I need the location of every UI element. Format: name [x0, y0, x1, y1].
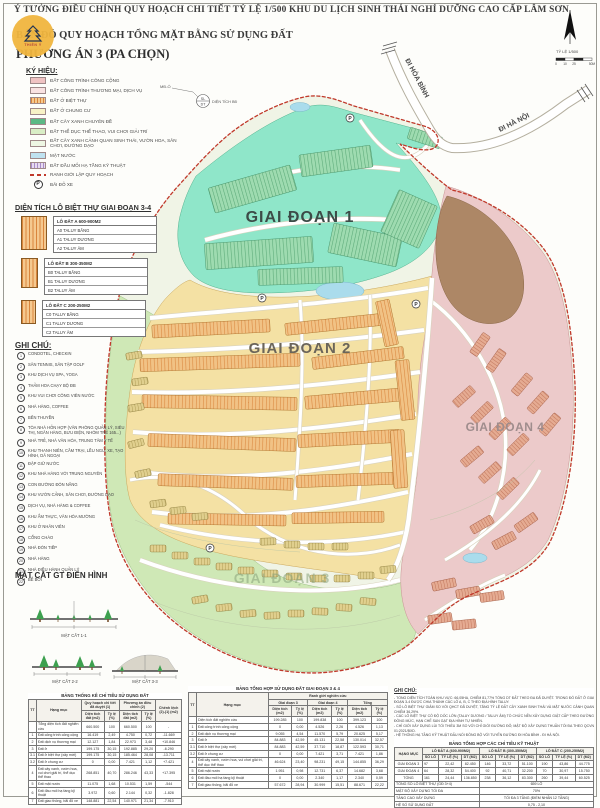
table-cell: 45.131 — [308, 737, 332, 744]
table-cell: Đất mặt nước — [197, 768, 269, 775]
table-header-cell: Tỷ lệ (%) — [142, 710, 156, 721]
table-header-cell: DT (M2) — [461, 754, 479, 761]
table-header-cell: Diện tích đất (m2) — [81, 710, 104, 721]
table-cell: 268.851 — [81, 766, 104, 781]
legend-label: ĐẤT Ở BIỆT THỰ — [50, 98, 87, 103]
villa-lot-group: LÔ ĐẤT A 600-900M2A0 TALUY BẰNGA1 TALUY … — [21, 216, 183, 253]
table-cell: Đất công trình công cộng — [197, 724, 269, 731]
note-item: 11ĐẬP GIỮ NƯỚC — [17, 462, 125, 470]
table-cell: 2 — [189, 730, 197, 737]
scalebar-tick: 0 — [555, 62, 557, 66]
table-cell: 42,59 — [292, 737, 308, 744]
table-cell: 3.972 — [81, 787, 104, 798]
table-header-cell: HẠNG MỤC — [395, 747, 423, 760]
table-cell: 122.593 — [348, 744, 372, 751]
phase34-table-panel: BẢNG TỔNG HỢP SỬ DỤNG ĐẤT GIAI ĐOẠN 3 & … — [188, 686, 388, 789]
table-row: 7Đất giao thông, bãi đỗ xe148.88122,5414… — [29, 798, 182, 805]
legend-item: ĐẤT ĐẦU MỐI HẠ TẦNG KỸ THUẬT — [30, 162, 184, 169]
table-cell: 3,71 — [332, 750, 348, 757]
note-text: ĐẬP GIỮ NƯỚC — [28, 462, 59, 467]
lot-taluy-row: A2 TALUY ÂM — [54, 244, 156, 252]
bottom-note-line: - CÁC LÔ BIỆT THỰ CÓ ĐỘ DỐC LỚN (TALUY D… — [394, 714, 594, 723]
middle-table-title: BẢNG TỔNG HỢP SỬ DỤNG ĐẤT GIAI ĐOẠN 3 & … — [188, 686, 388, 691]
table-cell: -7.910 — [156, 798, 182, 805]
table-cell: 2.340 — [348, 775, 372, 782]
tree-trunk — [79, 667, 81, 670]
table-cell: 5,79 — [332, 730, 348, 737]
cross-section-title: MẶT CẮT GT ĐIỂN HÌNH — [15, 571, 107, 580]
scalebar-segment — [565, 58, 574, 61]
table-cell: 6 — [29, 787, 37, 798]
table-cell: 22,22 — [371, 781, 387, 788]
table-cell: 5 — [29, 781, 37, 788]
plan-sheet: { "header": { "line1": "Ý TƯỞNG ĐIỀU CHỈ… — [0, 0, 600, 800]
phase4-label: GIAI ĐOẠN 4 — [466, 420, 545, 434]
data-table: TTHạng mụcRanh giới nghiên cứuGiai đoạn … — [188, 692, 388, 789]
lot-taluy-row: C0 TALUY BẰNG — [43, 310, 145, 319]
legend-panel: KÝ HIỆU: ĐẤT CÔNG TRÌNH CÔNG CỘNGĐẤT CÔN… — [26, 66, 184, 191]
table-cell: 3 — [29, 745, 37, 752]
table-header-cell: Quy hoạch chi tiết đã duyệt (1) — [81, 700, 119, 711]
table-cell: 0 — [81, 759, 104, 766]
note-number-icon: 6 — [17, 405, 25, 413]
pond — [463, 553, 487, 563]
cross-sections: MẶT CẮT 1-1 MẶT CẮT 2-2 MẶT CẮT 3-3 — [10, 585, 190, 690]
legend-swatch-icon: P — [30, 181, 46, 188]
right-table-title: BẢNG TỔNG HỢP CÁC CHỈ TIÊU KỸ THUẬT — [394, 741, 594, 746]
table-cell: 4.526 — [308, 724, 332, 731]
table-cell: 140.971 — [119, 798, 141, 805]
table-cell: -13.711 — [156, 752, 182, 759]
table-header-cell: Tỷ lệ (%) — [104, 710, 119, 721]
table-summary-row: TỔNG SỐ LÔ BIỆT THỰ (GĐ 3+4)659 LÔ — [395, 781, 594, 788]
table-cell: 192.885 — [119, 745, 141, 752]
note-number-icon: 20 — [17, 557, 25, 565]
lot-block — [264, 612, 280, 620]
note-text: CON ĐƯỜNG ĐÓN NẮNG — [28, 483, 78, 488]
lot-block — [452, 619, 477, 630]
table-cell: 33,72 — [496, 761, 518, 768]
table-row: 3.2Đất ở chung cư00,007.4211,12+7.421 — [29, 759, 182, 766]
section-label-3: MẶT CẮT 3-3 — [132, 679, 158, 684]
table-cell: 6,37 — [332, 768, 348, 775]
table-cell: 82.450 — [461, 761, 479, 768]
table-row: 3.1Đất ở biệt thự (xây mới)84.88342,5937… — [189, 744, 388, 751]
scalebar-tick: 50M — [589, 62, 596, 66]
table-cell: 22,58 — [332, 737, 348, 744]
note-item: 17KHU Ở NHÂN VIÊN — [17, 525, 125, 533]
note-number-icon: 19 — [17, 546, 25, 554]
note-text: BẾN THUYỀN — [28, 416, 54, 421]
lot-hatch-icon — [21, 216, 47, 250]
table-cell: 12.127 — [81, 739, 104, 746]
table-row: Diện tích đất nghiên cứu199.285100199.83… — [189, 717, 388, 724]
table-header-cell: Phương án điều chỉnh (2) — [119, 700, 156, 711]
legend-label: ĐẤT CÂY XANH CHUYÊN ĐỀ — [50, 119, 112, 124]
note-number-icon: 14 — [17, 493, 25, 501]
summary-label: HỆ SỐ SỬ DỤNG ĐẤT — [395, 801, 480, 808]
table-cell: Đất đầu mối hạ tầng kỹ thuật — [37, 787, 82, 798]
bottom-note-line: - TỔNG DIỆN TÍCH TOÀN KHU VỰC: 66,05HA, … — [394, 696, 594, 705]
notes-panel: GHI CHÚ: 1CONDOTEL, CHECKIN2SÂN TENNIS, … — [15, 341, 125, 589]
table-cell: 0,00 — [292, 724, 308, 731]
table-cell: +7.421 — [156, 759, 182, 766]
table-row: 3.1Đất ở biệt thự (xây mới)199.17530,151… — [29, 752, 182, 759]
lot-block — [150, 545, 166, 552]
table-header-cell: Giai đoạn 3 — [268, 699, 308, 706]
legend-label: BÃI ĐỖ XE — [50, 182, 73, 187]
note-text: KHU Ở NHÂN VIÊN — [28, 525, 65, 530]
table-header-cell: Hạng mục — [197, 693, 269, 717]
lot-block — [192, 512, 208, 520]
table-cell: 30,97 — [553, 768, 575, 775]
note-number-icon: 1 — [17, 352, 25, 360]
table-cell: 660.500 — [81, 721, 104, 732]
legend-item: RANH GIỚI LẬP QUY HOẠCH — [30, 172, 184, 177]
table-cell: 6 — [189, 775, 197, 782]
table-cell: 2.144 — [119, 787, 141, 798]
table-cell: +10.846 — [156, 739, 182, 746]
lot-block — [336, 604, 352, 612]
table-cell: 49,15 — [332, 757, 348, 768]
table-cell: 98.231 — [308, 757, 332, 768]
table-row: TỔNG16124,44136.85023836,1283.30026039,4… — [395, 774, 594, 781]
table-cell: 146 — [479, 761, 495, 768]
lot-block — [312, 608, 328, 616]
table-cell: 16.419 — [81, 732, 104, 739]
note-text: KHU NHÀ HÀNG VỚI TRUNG NGUYÊN — [28, 472, 102, 477]
table-cell: 2.340 — [308, 775, 332, 782]
table-header-cell: TỶ LỆ (%) — [496, 754, 518, 761]
table-header-cell: LÔ ĐẤT A (600-900M2) — [422, 747, 479, 754]
table-cell: 32,57 — [371, 737, 387, 744]
legend-item: ĐẤT THỂ DỤC THỂ THAO, VUI CHƠI GIẢI TRÍ — [30, 128, 184, 135]
table-cell: 30,15 — [104, 752, 119, 759]
data-table: HẠNG MỤCLÔ ĐẤT A (600-900M2)LÔ ĐẤT B (30… — [394, 747, 594, 808]
legend-swatch-icon — [30, 152, 46, 159]
legend-label: ĐẤT CÔNG TRÌNH THƯƠNG MẠI, DỊCH VỤ — [50, 88, 142, 93]
note-number-icon: 12 — [17, 472, 25, 480]
table-cell: 28,32 — [439, 768, 461, 775]
note-item: 9NHÀ TRẺ, NHÀ VĂN HÓA, TRUNG TÂM Y TẾ — [17, 439, 125, 447]
table-cell: 1,17 — [332, 775, 348, 782]
table-cell: TỔNG — [395, 774, 423, 781]
table-cell: 185.464 — [119, 752, 141, 759]
table-cell: 4.750 — [119, 732, 141, 739]
lot-block — [334, 575, 350, 582]
table-cell: 0,59 — [371, 775, 387, 782]
table-cell: 22,54 — [104, 798, 119, 805]
table-cell: -11.669 — [156, 732, 182, 739]
table-cell: -6.290 — [156, 745, 182, 752]
table-cell: 1,86 — [371, 750, 387, 757]
table-cell: 0,60 — [104, 787, 119, 798]
table-cell: 0,72 — [142, 732, 156, 739]
summary-value: 70% — [479, 788, 593, 795]
table-cell: 28,94 — [292, 781, 308, 788]
note-text: KHU VƯỜN CẢNH, SÂN CHƠI, ĐƯỜNG DẠO — [28, 493, 114, 498]
tree-icon — [88, 615, 92, 620]
table-cell: 144.855 — [348, 757, 372, 768]
table-cell: Đất giao thông, bãi đỗ xe — [37, 798, 82, 805]
note-item: 5KHU VUI CHƠI CÔNG VIÊN NƯỚC — [17, 394, 125, 402]
scalebar-tick: 25 — [572, 62, 576, 66]
tree-trunk — [39, 619, 41, 622]
legend-swatch-icon — [30, 77, 46, 84]
lot-block — [358, 572, 374, 579]
table-row: GIAI ĐOẠN 46428,3254.4009240,7132.200703… — [395, 768, 594, 775]
lot-type-box: LÔ ĐẤT A 600-900M2A0 TALUY BẰNGA1 TALUY … — [53, 216, 157, 253]
table-cell: 10.531 — [119, 781, 141, 788]
note-item: 15DỊCH VỤ, NHÀ HÀNG & COFFEE — [17, 504, 125, 512]
table-cell: 3,48 — [142, 739, 156, 746]
table-cell: 0,00 — [292, 750, 308, 757]
scalebar-tick: 10 — [563, 62, 567, 66]
tree-trunk — [91, 667, 92, 670]
note-text: KHU VUI CHƠI CÔNG VIÊN NƯỚC — [28, 394, 94, 399]
table-cell: 88.671 — [348, 781, 372, 788]
note-text: TÒA NHÀ HỖN HỢP (VĂN PHÒNG QUẢN LÝ, SIÊU… — [28, 426, 125, 436]
table-cell: Đất cây xanh, vườn hoa, vui chơi giải tr… — [37, 766, 82, 781]
table-cell — [189, 717, 197, 724]
table-header-cell: Diện tích (m2) — [308, 706, 332, 717]
table-row: 6Đất đầu mối hạ tầng kỹ thuật00,002.3401… — [189, 775, 388, 782]
table-cell: 30,71 — [371, 744, 387, 751]
table-cell: Tổng diện tích đất nghiên cứu — [37, 721, 82, 732]
table-cell: 5 — [189, 768, 197, 775]
table-cell: 1,12 — [142, 759, 156, 766]
table-cell: 1,68 — [104, 781, 119, 788]
legend-swatch-icon — [30, 174, 46, 176]
table-cell: 199.175 — [81, 745, 104, 752]
table-cell — [29, 721, 37, 732]
table-cell: 14.682 — [348, 768, 372, 775]
table-header-cell: Tỷ lệ (%) — [292, 706, 308, 717]
table-cell: 100 — [332, 717, 348, 724]
table-row: 2Đất dịch vụ thương mại12.1271,8422.9733… — [29, 739, 182, 746]
tree-trunk — [107, 619, 109, 622]
table-header-cell: TỶ LỆ (%) — [553, 754, 575, 761]
note-item: 2SÂN TENNIS, SÂN TẬP GOLF — [17, 363, 125, 371]
scalebar-segment — [583, 58, 592, 61]
table-cell: 37.710 — [308, 744, 332, 751]
table-cell: 39,44 — [553, 774, 575, 781]
table-cell: 3.2 — [189, 750, 197, 757]
table-cell: 199.285 — [268, 717, 292, 724]
table-cell: Đất mặt nước — [37, 781, 82, 788]
table-row: 3Đất ở84.88342,5945.13122,58130.01432,57 — [189, 737, 388, 744]
note-item: 19NHÀ ĐÓN TIẾP — [17, 546, 125, 554]
legend-label: ĐẤT CÂY XANH CẢNH QUAN SINH THÁI, VƯỜN H… — [50, 138, 184, 149]
note-number-icon: 2 — [17, 363, 25, 371]
table-cell: Đất giao thông, bãi đỗ xe — [197, 781, 269, 788]
table-header-cell: TT — [189, 693, 197, 717]
lot-block — [170, 506, 187, 515]
table-cell: 36,29 — [371, 757, 387, 768]
table-cell: 24,44 — [439, 774, 461, 781]
note-number-icon: 11 — [17, 462, 25, 470]
table-cell: Đất đầu mối hạ tầng kỹ thuật — [197, 775, 269, 782]
lot-type-name: LÔ ĐẤT C 200-250M2 — [43, 301, 145, 310]
table-header-cell: Tỷ lệ (%) — [371, 706, 387, 717]
tree-trunk — [90, 619, 91, 622]
legend-item: ĐẤT CÔNG TRÌNH CÔNG CỘNG — [30, 77, 184, 84]
table-cell: 0,00 — [104, 759, 119, 766]
note-item: 14KHU VƯỜN CẢNH, SÂN CHƠI, ĐƯỜNG DẠO — [17, 493, 125, 501]
table-cell: Đất ở chung cư — [197, 750, 269, 757]
tree-icon — [104, 609, 112, 619]
tree-trunk — [160, 671, 161, 674]
note-item: 3KHU DỊCH VỤ SPA, YOGA — [17, 373, 125, 381]
table-summary-row: TẦNG CAO XÂY DỰNGTỐI ĐA 3 TẦNG (ĐIỂM NHẤ… — [395, 795, 594, 802]
legend-swatch-icon — [30, 87, 46, 94]
table-cell: 100 — [104, 721, 119, 732]
table-cell: 1 — [189, 724, 197, 731]
table-cell: 238 — [479, 774, 495, 781]
legend-item: ĐẤT Ở BIỆT THỰ — [30, 97, 184, 104]
table-cell: 83.300 — [518, 774, 536, 781]
table-cell: 54.400 — [461, 768, 479, 775]
legend-label: ĐẤT ĐẦU MỐI HẠ TẦNG KỸ THUẬT — [50, 163, 126, 168]
table-cell: 100 — [371, 717, 387, 724]
note-number-icon: 17 — [17, 525, 25, 533]
villa-section-title: DIỆN TÍCH LÔ BIỆT THỰ GIAI ĐOẠN 3-4 — [15, 203, 183, 212]
table-cell: 57.672 — [268, 781, 292, 788]
tree-trunk — [58, 619, 59, 622]
legend-label: ĐẤT Ở CHUNG CƯ — [50, 108, 91, 113]
tree-trunk — [74, 619, 75, 622]
table-row: Tổng diện tích đất nghiên cứu660.5001006… — [29, 721, 182, 732]
lot-block — [360, 597, 377, 605]
table-cell: 18,87 — [332, 744, 348, 751]
lot-taluy-row: C1 TALUY DƯƠNG — [43, 319, 145, 328]
table-cell: Đất ở — [37, 745, 82, 752]
table-cell: 7 — [189, 781, 197, 788]
table-cell: 23,40 — [292, 757, 308, 768]
table-cell: Đất công trình công cộng — [37, 732, 82, 739]
table-header-cell: Ranh giới nghiên cứu — [268, 693, 387, 700]
table-cell: 46.624 — [268, 757, 292, 768]
table-cell: 21,34 — [142, 798, 156, 805]
bottom-note-line: - CHỈ GIỚI XÂY DỰNG LÙI TỐI THIỂU 3M SO … — [394, 724, 594, 733]
note-text: KHU DỊCH VỤ SPA, YOGA — [28, 373, 78, 378]
note-number-icon: 16 — [17, 515, 25, 523]
tree-icon — [36, 609, 44, 619]
table-cell: Đất ở — [197, 737, 269, 744]
table-cell: 22.973 — [119, 739, 141, 746]
note-number-icon: 4 — [17, 384, 25, 392]
table-cell: 0 — [268, 775, 292, 782]
lot-block — [288, 610, 304, 617]
table-header-cell: Diện tích (m2) — [348, 706, 372, 717]
section-label-2: MẶT CẮT 2-2 — [52, 679, 78, 684]
note-text: CONDOTEL, CHECKIN — [28, 352, 71, 357]
lot-block — [292, 511, 384, 524]
lot-block — [168, 513, 286, 526]
table-cell: 199.175 — [81, 752, 104, 759]
table-header-cell: Hạng mục — [37, 700, 82, 722]
legend-swatch-icon — [30, 140, 46, 147]
villa-lot-group: LÔ ĐẤT B 300-350M2B0 TALUY BẰNGB1 TALUY … — [21, 258, 183, 295]
table-cell: 60.525 — [575, 774, 593, 781]
summary-label: TẦNG CAO XÂY DỰNG — [395, 795, 480, 802]
note-number-icon: 8 — [17, 426, 25, 434]
table-cell: 2 — [29, 739, 37, 746]
table-cell: 2,49 — [104, 732, 119, 739]
note-text: NHÀ ĐÓN TIẾP — [28, 546, 57, 551]
company-logo: THIÊN Ý — [12, 15, 54, 57]
table-header-cell: Diện tích đất (m2) — [119, 710, 141, 721]
table-cell: 28,08 — [142, 752, 156, 759]
phase2-label: GIAI ĐOẠN 2 — [249, 340, 352, 357]
table-row: 5Đất mặt nước1.9510,9812.7316,3714.6823,… — [189, 768, 388, 775]
table-cell: 64 — [422, 768, 438, 775]
table-cell: 0 — [268, 724, 292, 731]
table-cell: 7.421 — [308, 750, 332, 757]
lot-taluy-row: C2 TALUY ÂM — [43, 328, 145, 336]
pond — [290, 103, 310, 112]
table-cell: 1,59 — [142, 781, 156, 788]
table-cell: 43,33 — [142, 766, 156, 781]
table-cell: 148.881 — [81, 798, 104, 805]
table-header-cell: Giai đoạn 4 — [308, 699, 348, 706]
table-cell: -544 — [156, 781, 182, 788]
table-cell: 51.100 — [518, 761, 536, 768]
bottom-note-line: - HỆ THỐNG HẠ TẦNG KỸ THUẬT ĐẤU NỐI ĐỒNG… — [394, 733, 594, 738]
bottom-note-line: - SỐ LÔ BIỆT THỰ GIẢM SO VỚI QHCT ĐÃ DUY… — [394, 705, 594, 714]
table-cell: -1.828 — [156, 787, 182, 798]
lot-taluy-row: B1 TALUY DƯƠNG — [45, 277, 147, 286]
table-cell: 3 — [189, 737, 197, 744]
note-number-icon: 15 — [17, 504, 25, 512]
note-number-icon: 10 — [17, 449, 25, 457]
table-cell: 2,26 — [332, 724, 348, 731]
table-cell: 4 — [189, 757, 197, 768]
table-cell: 0,00 — [292, 775, 308, 782]
tree-icon — [53, 659, 59, 667]
table-header-cell: Tổng — [348, 699, 388, 706]
table-cell: 15.750 — [575, 768, 593, 775]
table-cell: 40,70 — [104, 766, 119, 781]
parking-icon: P — [34, 180, 43, 189]
table-row: 3Đất ở199.17530,15192.88529,20-6.290 — [29, 745, 182, 752]
lot-block — [216, 603, 233, 612]
table-cell: 70 — [536, 768, 552, 775]
lot-block — [284, 541, 300, 548]
table-cell: 4 — [29, 766, 37, 781]
note-text: NHÀ HÀNG, COFFEE — [28, 405, 69, 410]
table-summary-row: HỆ SỐ SỬ DỤNG ĐẤT0,75 - 2,10 — [395, 801, 594, 808]
note-text: NHÀ HÀNG — [28, 557, 50, 562]
lot-block — [258, 267, 344, 286]
legend-item: PBÃI ĐỖ XE — [30, 181, 184, 188]
table-row: 2Đất dịch vụ thương mại9.0554,5411.5705,… — [189, 730, 388, 737]
table-row: 1Đất công trình công cộng16.4192,494.750… — [29, 732, 182, 739]
lot-block — [194, 558, 210, 565]
table-cell: 20.625 — [348, 730, 372, 737]
table-cell: 0,98 — [292, 768, 308, 775]
table-header-cell: SỐ LÔ — [422, 754, 438, 761]
villa-lot-group: LÔ ĐẤT C 200-250M2C0 TALUY BẰNGC1 TALUY … — [21, 300, 183, 337]
table-cell: 12.731 — [308, 768, 332, 775]
table-header-cell: DT (M2) — [518, 754, 536, 761]
table-row: 1Đất công trình công cộng00,004.5262,264… — [189, 724, 388, 731]
table-cell: 3.2 — [29, 759, 37, 766]
pagoda-icon — [22, 25, 44, 43]
note-text: SÂN TENNIS, SÂN TẬP GOLF — [28, 363, 84, 368]
tree-icon — [39, 655, 49, 667]
table-cell: 3.1 — [189, 744, 197, 751]
